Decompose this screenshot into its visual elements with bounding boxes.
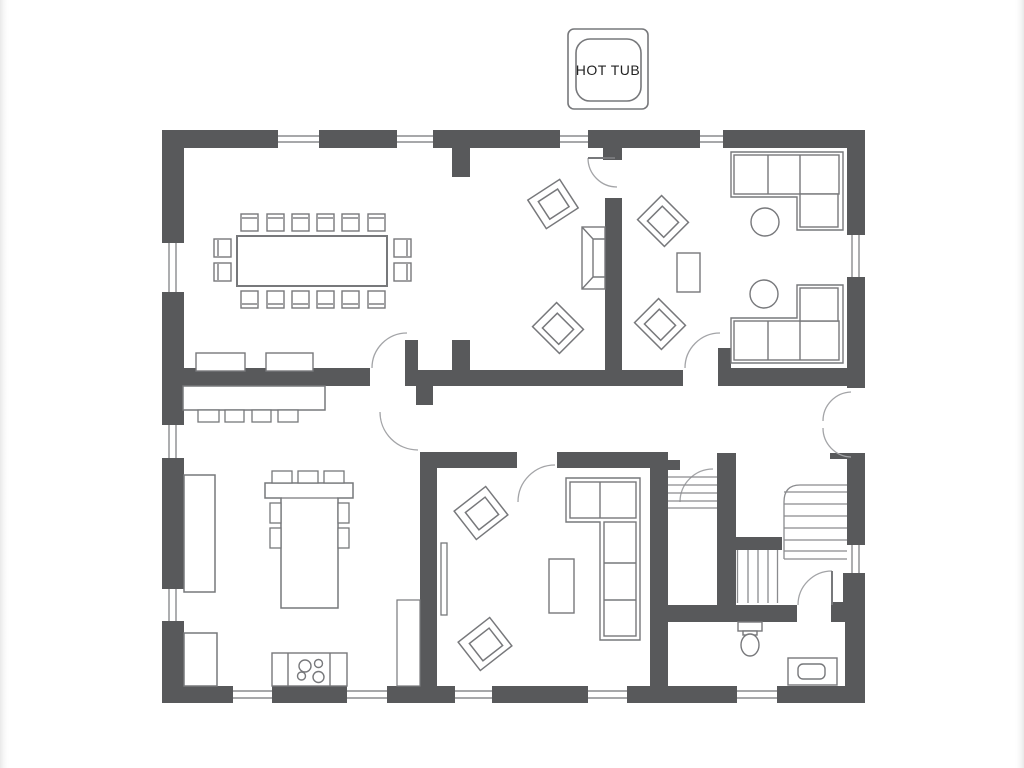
- coffee-table: [549, 559, 574, 613]
- breakfast-bar: [183, 386, 325, 410]
- double-door-arc-bottom: [823, 428, 851, 457]
- bathroom-door-arc: [798, 571, 832, 605]
- double-door-arc-top: [823, 392, 851, 421]
- armchair: [638, 196, 689, 247]
- floor-plan: HOT TUB: [0, 0, 1024, 768]
- tv-unit: [441, 543, 447, 615]
- round-side-table: [751, 208, 779, 236]
- sitting-room-furniture: [731, 152, 843, 363]
- armchair: [458, 618, 512, 671]
- family-room-door-arc: [518, 465, 555, 502]
- hall-sitting-room-door-arc: [685, 333, 720, 368]
- stove: [272, 653, 347, 686]
- fireplace: [582, 227, 605, 289]
- stair-flight-middle: [738, 550, 778, 603]
- armchair: [533, 303, 584, 354]
- stair-flight-left: [668, 477, 717, 508]
- dining-chairs-right: [394, 239, 411, 281]
- kitchen-counter-left: [184, 475, 215, 592]
- sectional-sofa-top: [731, 152, 843, 230]
- armchair: [528, 179, 578, 228]
- toilet: [738, 622, 762, 656]
- armchair: [635, 299, 686, 350]
- dining-chairs-left: [214, 239, 231, 281]
- sideboard: [196, 353, 245, 371]
- sectional-sofa-bottom: [731, 285, 843, 363]
- bathroom-fixtures: [738, 622, 837, 685]
- dining-table: [237, 236, 387, 286]
- kitchen-hall-door-arc: [380, 412, 418, 450]
- dining-hall-door-arc: [372, 333, 407, 368]
- breakfast-bar-stools: [198, 410, 298, 422]
- stair-flight-right: [784, 485, 847, 559]
- hot-tub-door-arc: [588, 158, 617, 187]
- dining-chairs-top: [241, 214, 385, 231]
- hot-tub: HOT TUB: [568, 29, 648, 109]
- family-room-furniture: [441, 478, 640, 670]
- armchair: [454, 487, 508, 540]
- sectional-sofa-family: [566, 478, 640, 640]
- kitchen-cabinet-corner: [184, 633, 217, 686]
- kitchen-tall-cabinet: [397, 600, 420, 686]
- hot-tub-label: HOT TUB: [576, 62, 640, 78]
- round-side-table: [750, 280, 778, 308]
- dining-chairs-bottom: [241, 291, 385, 308]
- sink: [788, 658, 837, 685]
- sideboard: [266, 353, 313, 371]
- hall-side-table: [677, 253, 700, 292]
